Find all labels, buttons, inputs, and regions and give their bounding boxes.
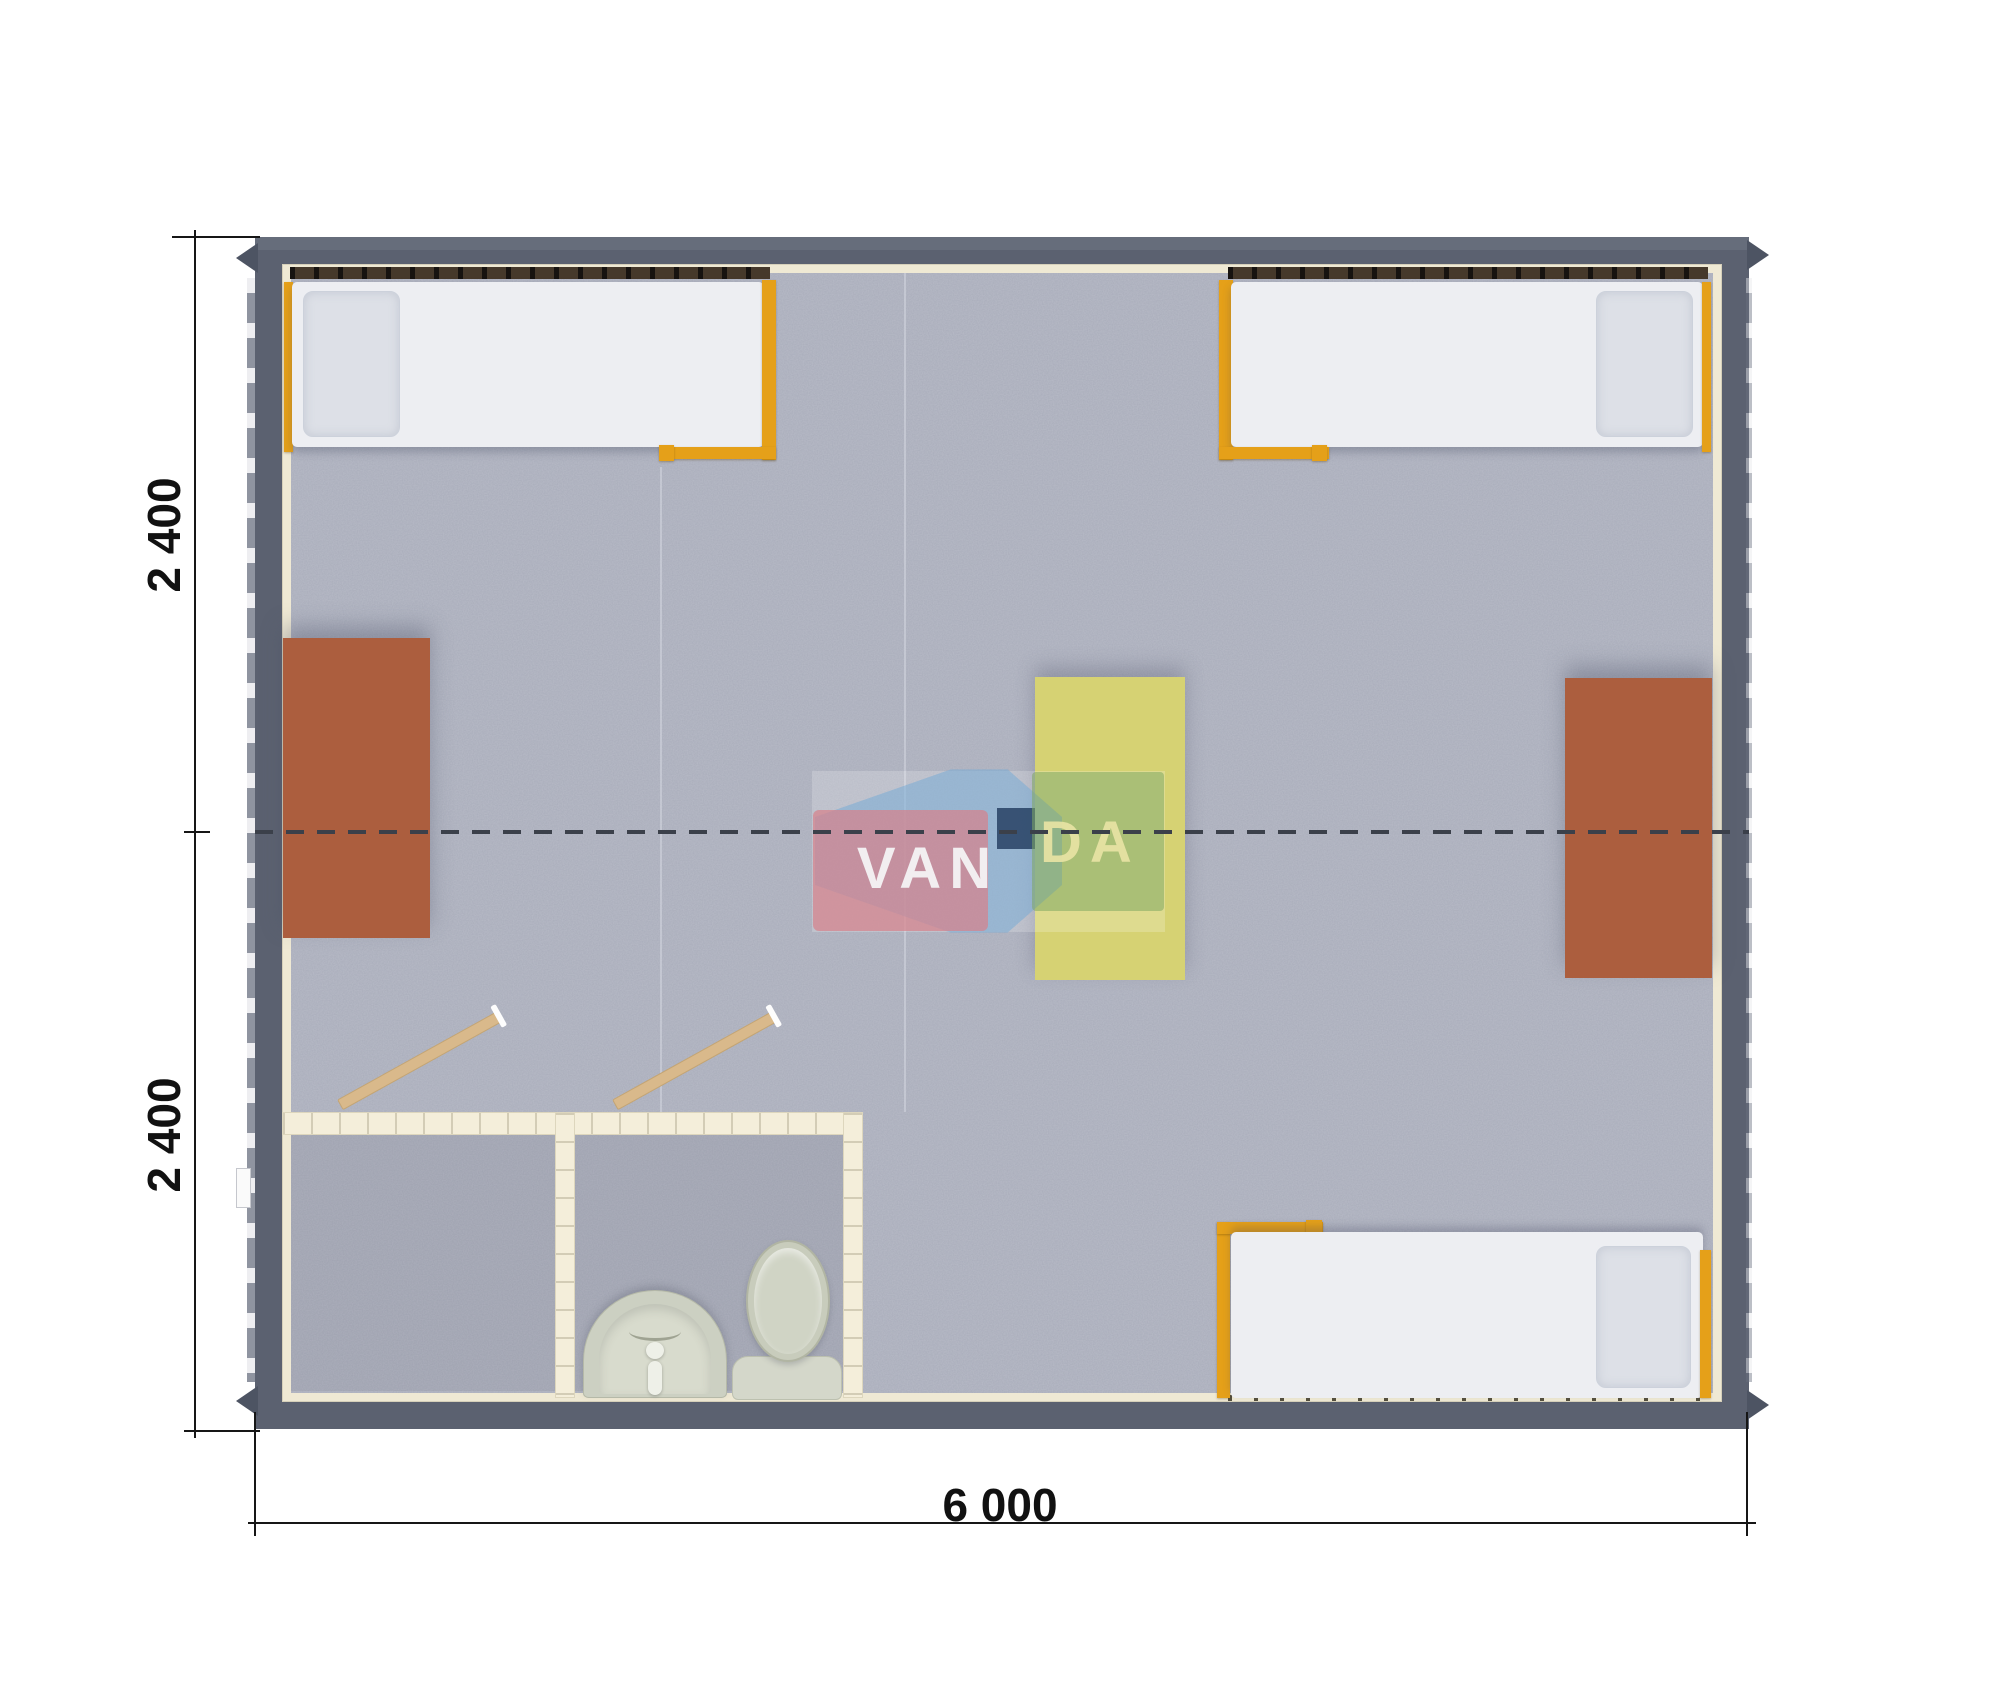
- bed3-head-frame: [1700, 1250, 1711, 1398]
- bed2-frame-nub: [1312, 445, 1327, 461]
- heater-strip-top-left: [290, 267, 770, 279]
- floor-panel-seam: [904, 273, 906, 1112]
- dim-label-left-top: 2 400: [137, 425, 183, 645]
- bed1-frame-nub: [659, 445, 674, 461]
- bed2-head-frame: [1702, 282, 1711, 452]
- entry-door-marker: [236, 1168, 251, 1208]
- toilet-base: [732, 1356, 842, 1400]
- faucet-stem: [648, 1361, 662, 1395]
- desk-left: [283, 638, 430, 938]
- top-wall-highlight: [255, 237, 1749, 250]
- dim-left-tick-top: [172, 236, 260, 238]
- floor-plan-canvas: VAN DA 2 400 2 400 6 000: [0, 0, 2000, 1701]
- bed3-foot-frame: [1217, 1222, 1230, 1398]
- logo-text-van: VAN: [828, 838, 1028, 900]
- corner-cast-top-right: [1747, 240, 1769, 270]
- faucet-knob: [646, 1342, 664, 1359]
- left-wall-edge-marks: [247, 278, 255, 1382]
- bed3-pillow: [1596, 1246, 1691, 1388]
- washbasin-overflow-arc: [629, 1322, 681, 1341]
- corner-cast-bottom-right: [1747, 1390, 1769, 1420]
- module-joint-dashed-line: [255, 830, 1749, 834]
- dim-label-left-bottom: 2 400: [137, 1025, 183, 1245]
- dim-bottom-ext-left: [254, 1412, 256, 1536]
- toilet-lid-inner: [754, 1248, 822, 1354]
- dim-left-line: [194, 230, 196, 1438]
- heater-strip-top-right: [1228, 267, 1708, 279]
- bed1-foot-rail: [666, 447, 776, 459]
- dim-label-bottom: 6 000: [850, 1478, 1150, 1532]
- floor-panel-seam: [660, 467, 662, 1112]
- bed1-pillow: [303, 291, 400, 437]
- desk-right: [1565, 678, 1712, 978]
- bathroom-divider-wall: [555, 1112, 575, 1398]
- bed1-foot-frame: [762, 280, 776, 460]
- dim-left-tick-bottom: [184, 1430, 260, 1432]
- bathroom-right-wall: [843, 1112, 863, 1398]
- dim-left-tick-mid: [184, 831, 210, 833]
- dim-bottom-ext-right: [1746, 1412, 1748, 1536]
- logo-text-da: DA: [1040, 812, 1180, 874]
- bed2-pillow: [1596, 291, 1693, 437]
- corner-cast-top-left: [236, 243, 258, 273]
